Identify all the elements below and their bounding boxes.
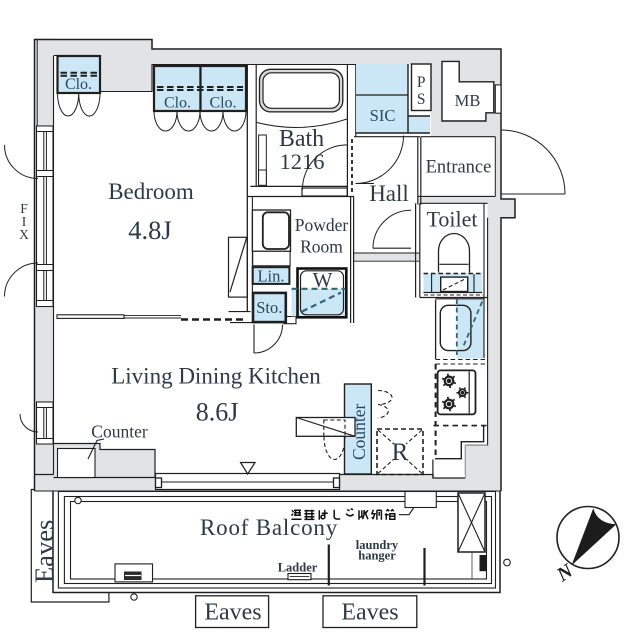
svg-text:Entrance: Entrance bbox=[426, 158, 492, 178]
svg-text:Eaves: Eaves bbox=[204, 600, 261, 626]
svg-text:SIC: SIC bbox=[370, 106, 396, 125]
svg-text:hanger: hanger bbox=[358, 549, 396, 563]
svg-text:Toilet: Toilet bbox=[426, 207, 477, 232]
svg-text:Clo.: Clo. bbox=[164, 95, 191, 112]
svg-text:S: S bbox=[417, 91, 426, 108]
svg-text:4.8J: 4.8J bbox=[128, 215, 171, 245]
svg-text:Ladder: Ladder bbox=[278, 561, 318, 575]
svg-text:R: R bbox=[392, 439, 409, 466]
svg-text:Lin.: Lin. bbox=[257, 266, 284, 285]
svg-text:1216: 1216 bbox=[280, 149, 325, 174]
svg-text:Counter: Counter bbox=[91, 422, 148, 442]
svg-text:P: P bbox=[417, 74, 426, 91]
svg-text:Living Dining Kitchen: Living Dining Kitchen bbox=[111, 364, 321, 389]
svg-text:Eaves: Eaves bbox=[29, 520, 59, 583]
svg-text:Room: Room bbox=[300, 237, 343, 257]
svg-text:Sto.: Sto. bbox=[256, 298, 282, 317]
svg-text:MB: MB bbox=[455, 91, 481, 110]
svg-text:X: X bbox=[19, 227, 29, 242]
svg-text:Clo.: Clo. bbox=[65, 76, 92, 93]
svg-text:Roof Balcony: Roof Balcony bbox=[200, 515, 338, 540]
svg-text:8.6J: 8.6J bbox=[196, 398, 239, 427]
svg-text:Hall: Hall bbox=[369, 181, 409, 206]
svg-text:W: W bbox=[313, 268, 333, 292]
svg-text:Eaves: Eaves bbox=[341, 600, 398, 626]
svg-text:Clo.: Clo. bbox=[209, 95, 236, 112]
svg-text:Powder: Powder bbox=[295, 215, 349, 235]
svg-text:Bedroom: Bedroom bbox=[108, 179, 194, 204]
